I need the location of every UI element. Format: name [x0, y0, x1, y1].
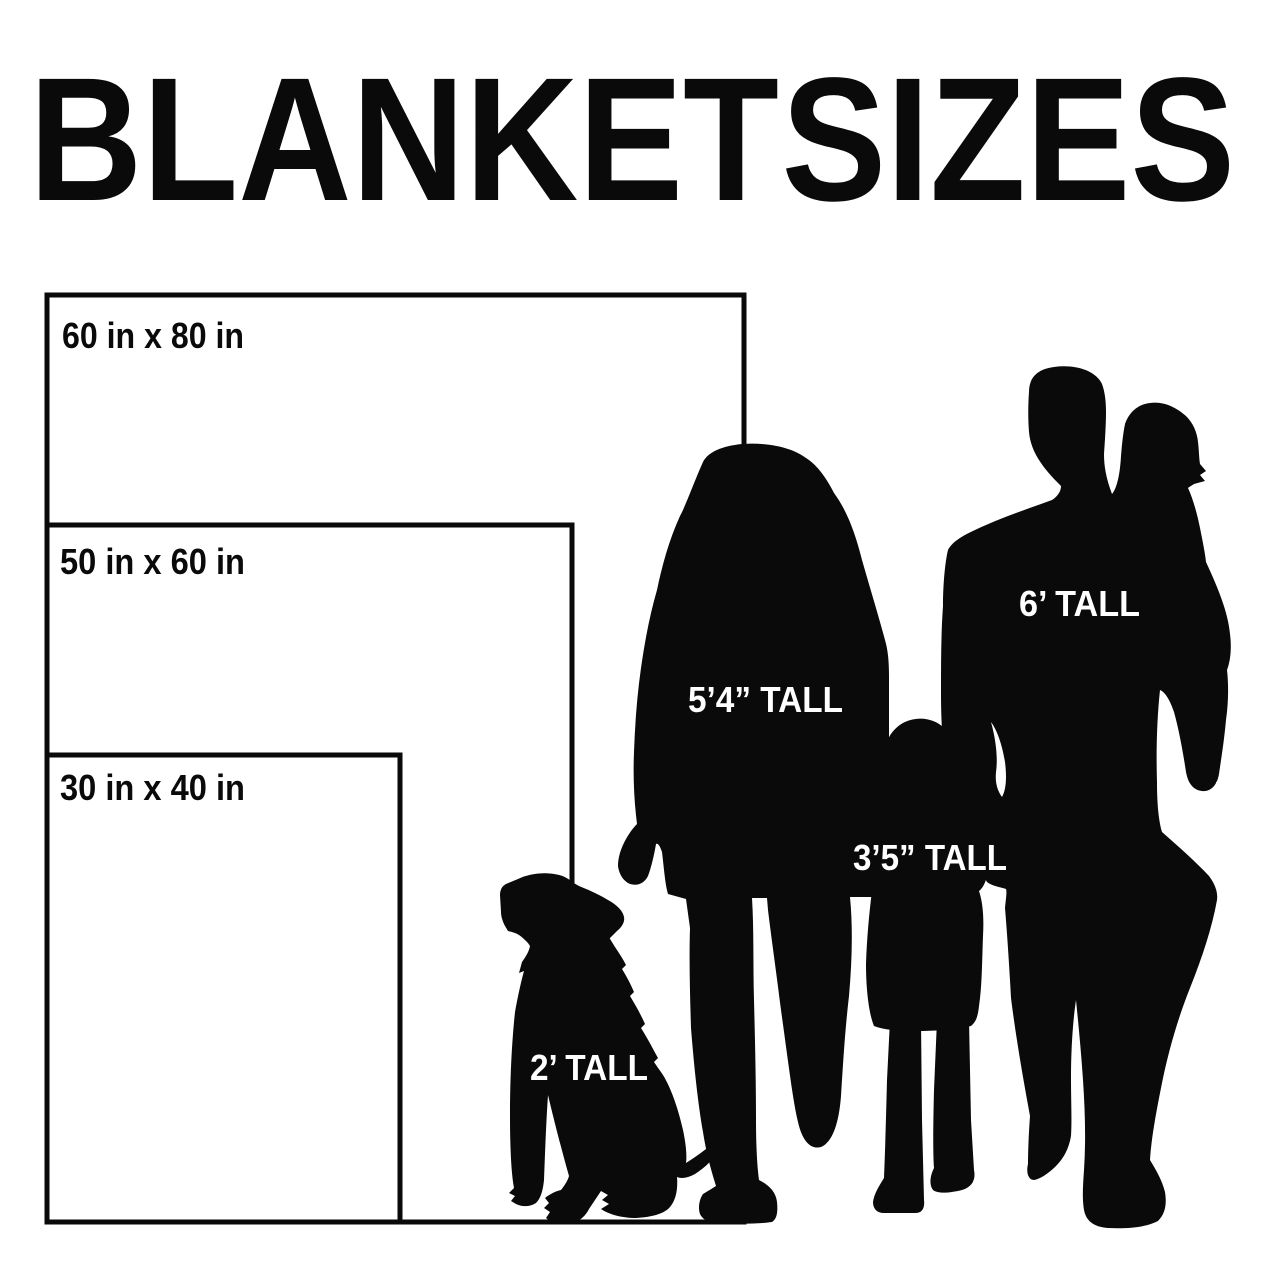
svg-text:60 in x 80 in: 60 in x 80 in: [62, 315, 244, 356]
svg-text:6’ TALL: 6’ TALL: [1019, 583, 1140, 624]
svg-text:3’5” TALL: 3’5” TALL: [853, 837, 1007, 878]
svg-text:2’ TALL: 2’ TALL: [530, 1047, 648, 1088]
svg-text:50 in x 60 in: 50 in x 60 in: [60, 541, 245, 582]
svg-text:30 in x 40 in: 30 in x 40 in: [60, 767, 245, 808]
svg-text:5’4” TALL: 5’4” TALL: [688, 679, 843, 720]
svg-text:BLANKET SIZES: BLANKET SIZES: [29, 42, 1235, 238]
